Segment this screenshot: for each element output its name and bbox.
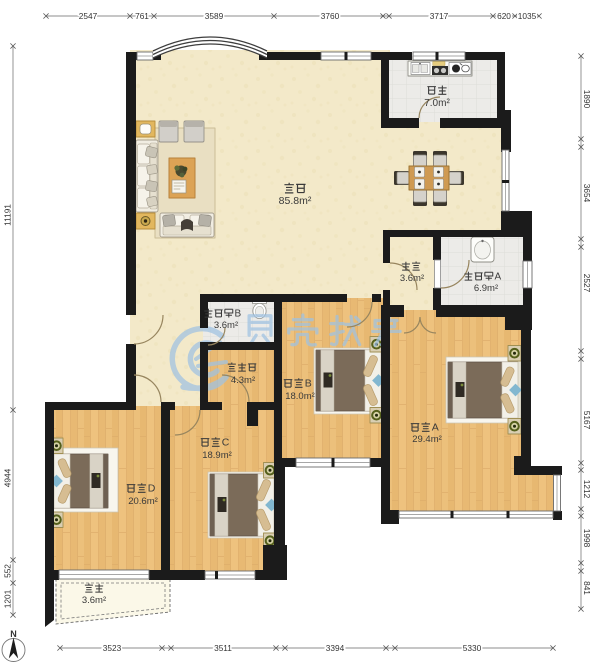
- svg-text:3511: 3511: [214, 643, 232, 653]
- svg-text:6.9m²: 6.9m²: [474, 283, 498, 294]
- svg-text:4.3m²: 4.3m²: [231, 375, 255, 386]
- svg-text:841: 841: [582, 581, 592, 595]
- svg-text:3717: 3717: [430, 11, 449, 21]
- svg-text:7.0m²: 7.0m²: [424, 98, 450, 109]
- svg-text:1212: 1212: [582, 480, 592, 499]
- svg-text:11191: 11191: [2, 204, 12, 226]
- svg-text:29.4m²: 29.4m²: [412, 434, 442, 445]
- svg-text:3.6m²: 3.6m²: [82, 595, 106, 606]
- svg-text:620: 620: [497, 11, 511, 21]
- svg-text:761: 761: [135, 11, 149, 21]
- svg-text:B: B: [235, 308, 242, 319]
- svg-text:A: A: [495, 271, 502, 282]
- svg-text:1998: 1998: [582, 529, 592, 548]
- svg-text:3589: 3589: [205, 11, 224, 21]
- svg-text:5330: 5330: [463, 643, 482, 653]
- svg-text:18.9m²: 18.9m²: [202, 450, 232, 461]
- svg-text:A: A: [432, 422, 439, 434]
- svg-text:18.0m²: 18.0m²: [285, 391, 315, 402]
- svg-text:D: D: [148, 483, 156, 495]
- svg-text:552: 552: [2, 564, 12, 578]
- svg-text:2547: 2547: [79, 11, 98, 21]
- svg-text:3654: 3654: [582, 184, 592, 203]
- svg-text:N: N: [10, 629, 17, 639]
- svg-text:C: C: [222, 437, 230, 449]
- svg-text:3.6m²: 3.6m²: [214, 320, 238, 331]
- svg-text:3523: 3523: [103, 643, 122, 653]
- svg-text:20.6m²: 20.6m²: [128, 496, 158, 507]
- svg-text:B: B: [305, 378, 312, 390]
- svg-text:85.8m²: 85.8m²: [279, 195, 312, 207]
- svg-text:1890: 1890: [582, 90, 592, 109]
- svg-text:1035: 1035: [518, 11, 537, 21]
- svg-text:4944: 4944: [2, 468, 12, 487]
- svg-text:3394: 3394: [326, 643, 345, 653]
- svg-text:1201: 1201: [2, 589, 12, 608]
- svg-text:5167: 5167: [582, 411, 592, 430]
- svg-text:2527: 2527: [582, 274, 592, 293]
- svg-text:3.6m²: 3.6m²: [400, 273, 424, 284]
- svg-text:3760: 3760: [321, 11, 340, 21]
